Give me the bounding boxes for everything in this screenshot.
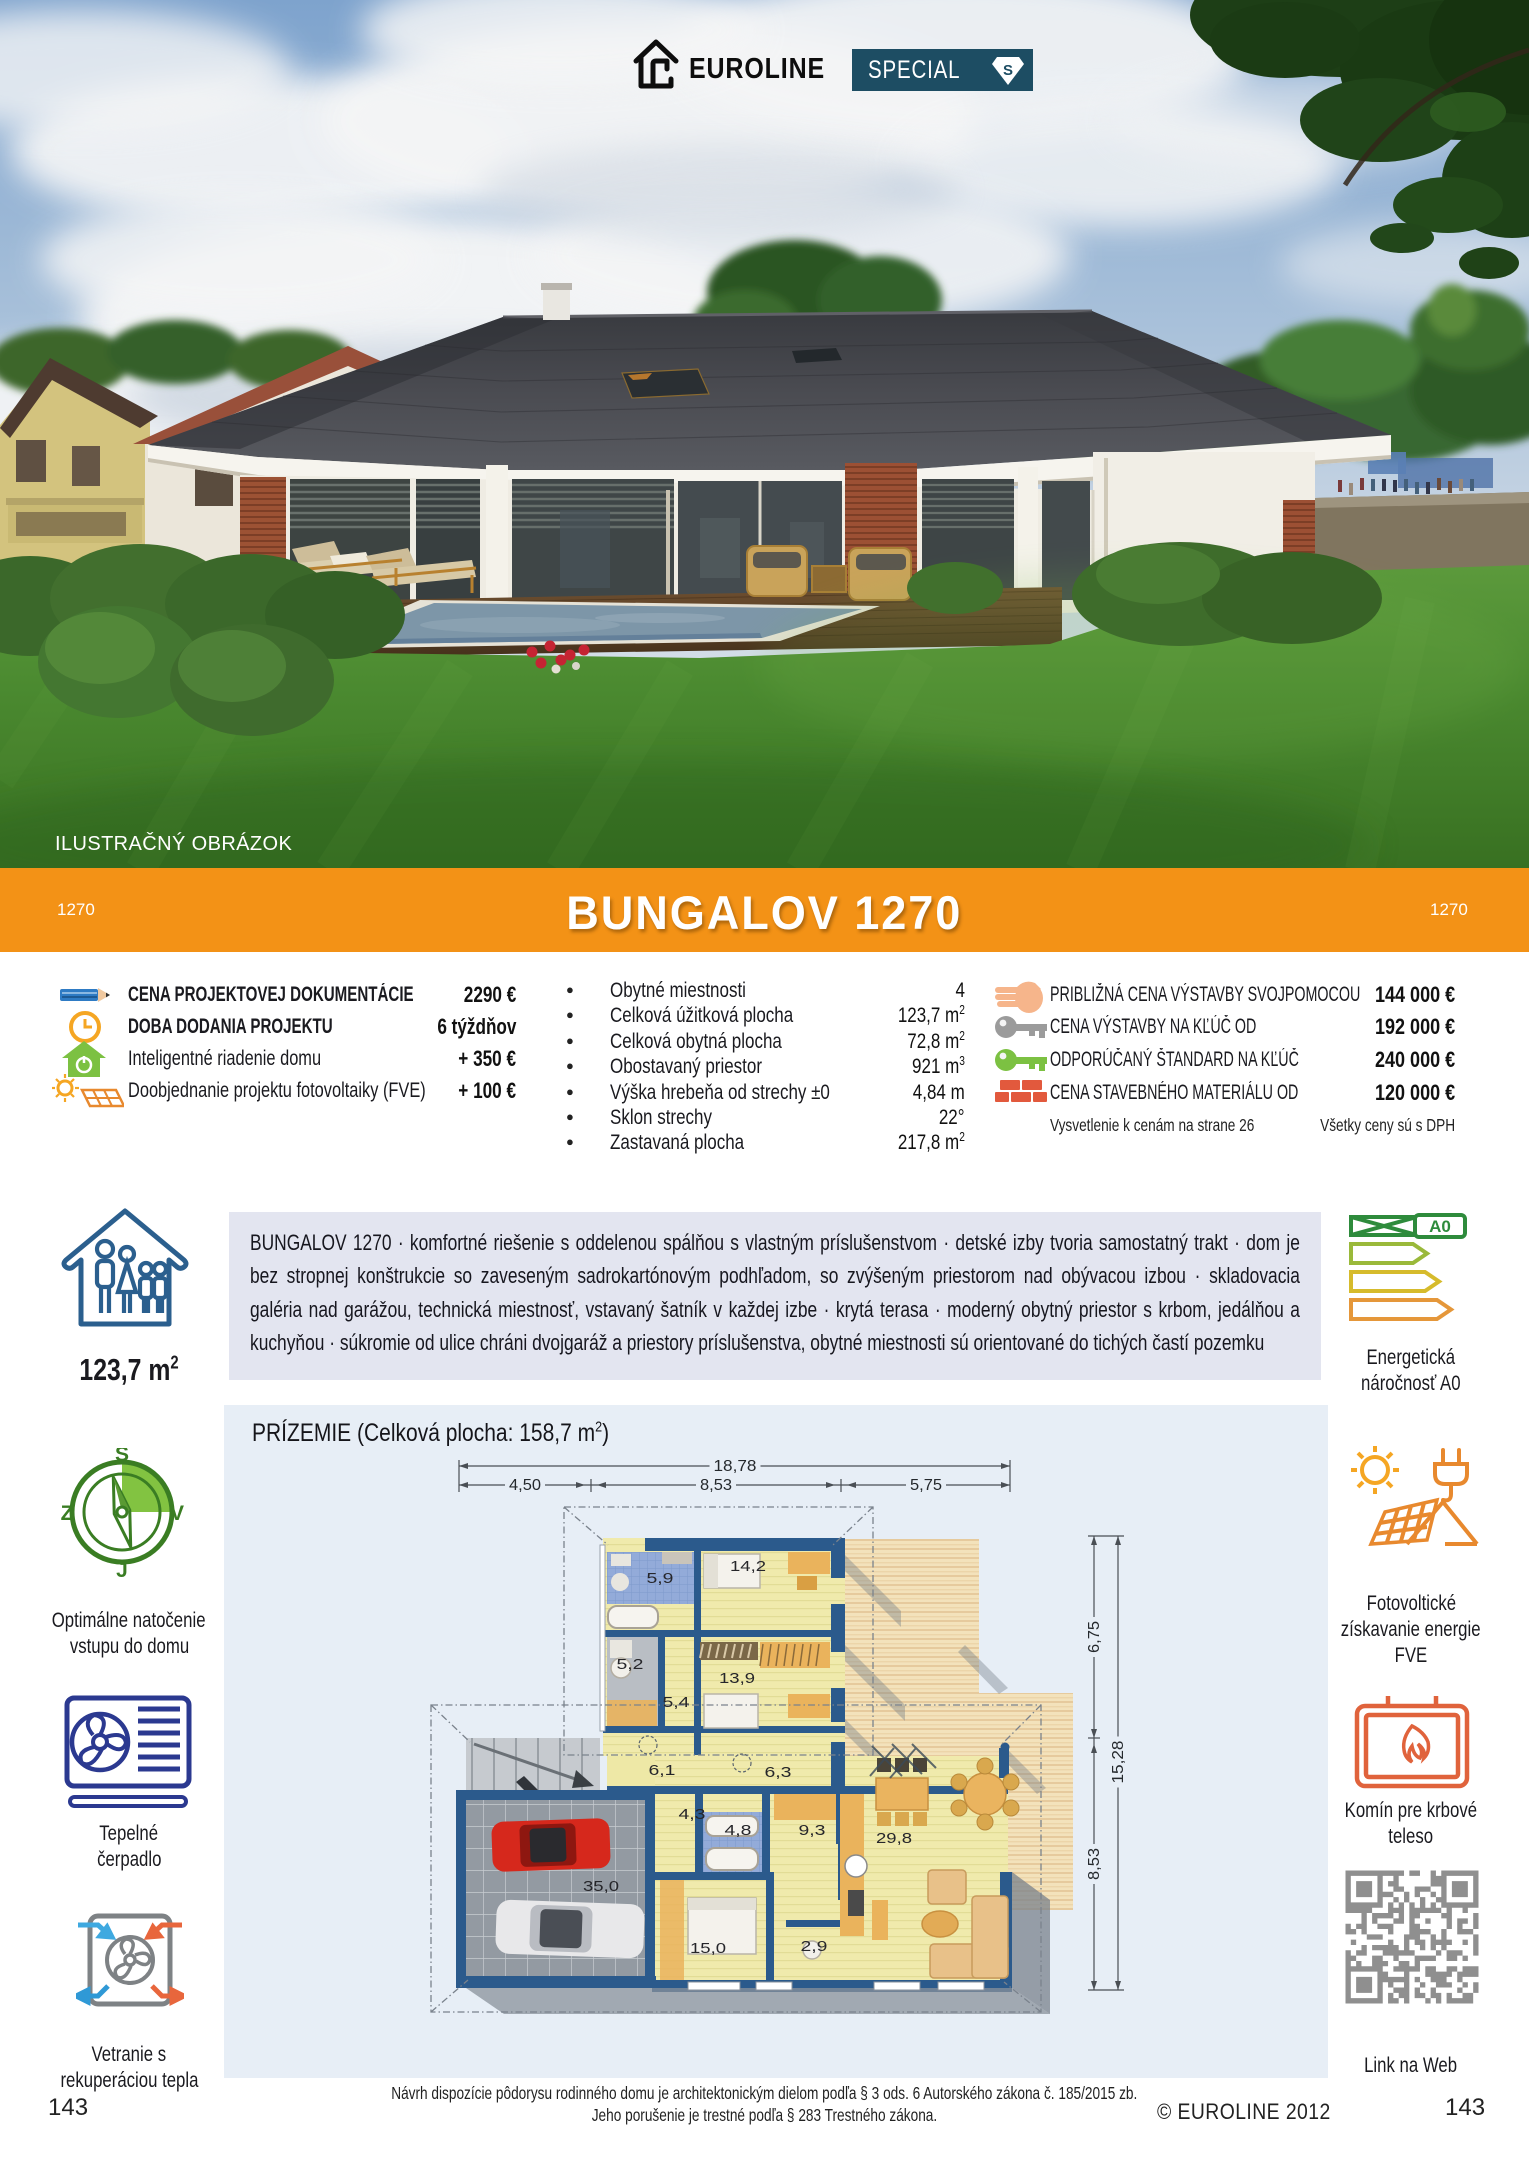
svg-text:4,3: 4,3 — [679, 1807, 706, 1823]
svg-text:35,0: 35,0 — [583, 1879, 619, 1895]
svg-text:S: S — [115, 1448, 129, 1466]
svg-text:8,53: 8,53 — [1086, 1848, 1103, 1880]
svg-text:V: V — [170, 1502, 184, 1525]
svg-text:14,2: 14,2 — [730, 1559, 766, 1575]
svg-text:8,53: 8,53 — [700, 1477, 732, 1494]
svg-text:5,2: 5,2 — [617, 1657, 644, 1673]
svg-text:4,8: 4,8 — [725, 1823, 752, 1839]
svg-text:S: S — [1003, 62, 1013, 79]
svg-text:A0: A0 — [1429, 1217, 1451, 1236]
svg-text:15,0: 15,0 — [690, 1941, 726, 1957]
svg-text:EUROLINE: EUROLINE — [689, 53, 825, 85]
svg-text:4,50: 4,50 — [509, 1477, 541, 1494]
svg-text:9,3: 9,3 — [799, 1823, 826, 1839]
svg-text:Z: Z — [61, 1502, 74, 1525]
svg-text:5,9: 5,9 — [647, 1571, 674, 1587]
svg-text:18,78: 18,78 — [714, 1458, 757, 1475]
svg-text:ILUSTRAČNÝ OBRÁZOK: ILUSTRAČNÝ OBRÁZOK — [55, 832, 292, 855]
svg-text:5,4: 5,4 — [663, 1695, 690, 1711]
svg-text:6,1: 6,1 — [649, 1763, 676, 1779]
svg-text:2,9: 2,9 — [801, 1939, 828, 1955]
svg-text:13,9: 13,9 — [719, 1671, 755, 1687]
svg-text:6,3: 6,3 — [765, 1765, 792, 1781]
svg-text:5,75: 5,75 — [910, 1477, 942, 1494]
svg-text:J: J — [116, 1559, 128, 1578]
svg-text:6,75: 6,75 — [1086, 1621, 1103, 1653]
svg-text:29,8: 29,8 — [876, 1831, 912, 1847]
svg-text:15,28: 15,28 — [1110, 1741, 1127, 1784]
